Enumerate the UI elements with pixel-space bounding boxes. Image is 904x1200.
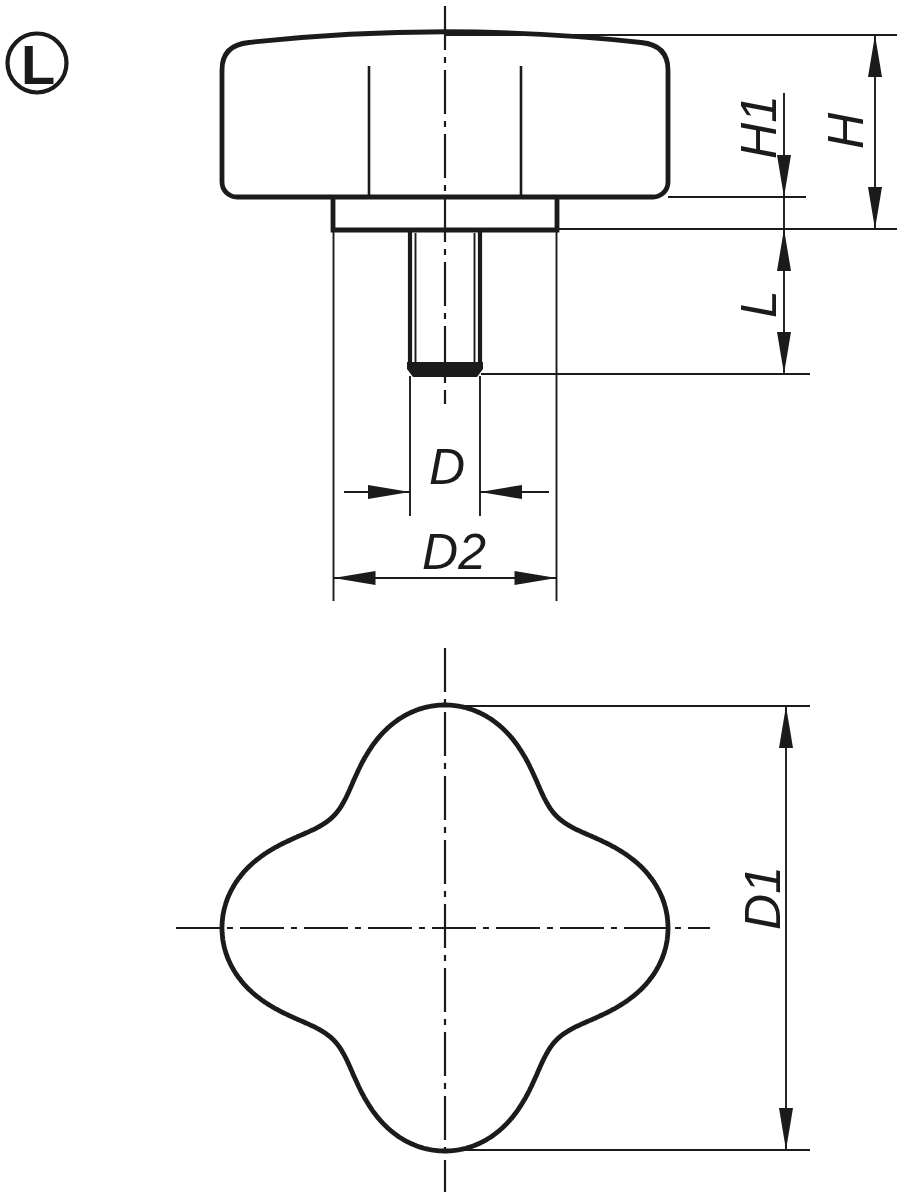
arrowhead-d2-right (515, 571, 557, 585)
arrowhead-d1-top (779, 706, 793, 748)
badge-letter: L (21, 33, 55, 96)
variant-badge: L (8, 33, 67, 96)
arrowhead-d2-left (334, 571, 376, 585)
dimension-h: H (818, 35, 882, 229)
arrowhead-h-top (868, 35, 882, 77)
arrowhead-d1-bottom (779, 1108, 793, 1150)
dimension-d1: D1 (735, 706, 793, 1150)
dim-label-h: H (818, 112, 874, 149)
dimension-d: D (344, 439, 549, 499)
dim-label-d1: D1 (735, 866, 791, 930)
stud-chamfered-end (407, 362, 483, 377)
dim-label-h1: H1 (731, 95, 787, 159)
technical-drawing-canvas: L (0, 0, 904, 1200)
arrowhead-h1-top (777, 155, 791, 197)
front-view-extension-lines (334, 35, 898, 601)
arrowhead-d-right (480, 485, 522, 499)
front-view (222, 6, 668, 404)
dim-label-d2: D2 (422, 524, 486, 580)
technical-drawing-page: L (0, 0, 904, 1200)
arrowhead-d-left (368, 485, 410, 499)
dimension-d2: D2 (334, 524, 557, 585)
dim-label-l: L (731, 290, 787, 318)
arrowhead-h1-l-shared (777, 229, 791, 271)
dimension-h1-and-l: H1 L (731, 93, 791, 374)
plan-view (176, 648, 810, 1192)
arrowhead-h-bottom (868, 187, 882, 229)
dim-label-d: D (429, 439, 465, 495)
arrowhead-l-bottom (777, 332, 791, 374)
